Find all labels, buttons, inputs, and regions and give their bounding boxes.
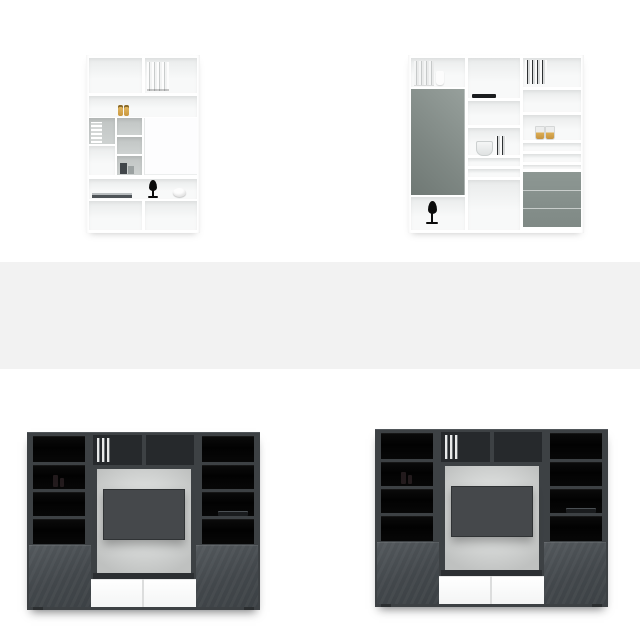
white-jug-decor — [436, 71, 444, 85]
shelf-compartment — [468, 169, 520, 177]
magazine-files-decor — [147, 62, 169, 91]
tv-screen — [103, 489, 185, 540]
product-tile-shelf-white-tall[interactable] — [86, 55, 200, 233]
black-shelf-compartment — [33, 436, 85, 462]
black-shelf-compartment — [550, 433, 602, 459]
shelf-compartment — [523, 165, 581, 169]
gray-vase-decor — [128, 166, 134, 174]
shelf-compartment — [89, 96, 197, 117]
product-tile-tv-2[interactable] — [375, 429, 608, 607]
books-decor — [97, 438, 112, 462]
shelf-compartment — [89, 146, 115, 175]
white-cabinet-door — [144, 118, 197, 175]
tv-wall-unit — [27, 432, 260, 610]
tv-wall-unit — [375, 429, 608, 607]
amber-cup-decor — [545, 126, 555, 140]
lower-door-left — [377, 542, 439, 604]
lower-door-right — [196, 545, 258, 607]
gray-drawer-cabinet — [523, 172, 581, 227]
book-stack-decor — [91, 122, 102, 143]
books-decor — [445, 435, 460, 459]
shelf-compartment — [468, 180, 520, 230]
bottle-decor — [118, 105, 123, 116]
unit-foot — [244, 607, 254, 610]
product-tile-wall-unit-white[interactable] — [408, 55, 584, 233]
drop-sculpture-base — [426, 222, 438, 224]
black-shelf-compartment — [202, 519, 254, 544]
top-shelf-divider — [490, 432, 494, 462]
flat-black-item-decor — [472, 94, 496, 98]
gray-cube-compartment — [117, 137, 142, 154]
books-decor — [414, 61, 434, 85]
glass-carafe-decor — [476, 141, 493, 156]
bottle-silhouette-decor — [60, 478, 64, 487]
dark-box-decor — [120, 163, 127, 174]
black-shelf-compartment — [202, 465, 254, 489]
black-shelf-compartment — [33, 492, 85, 516]
black-shelf-compartment — [202, 436, 254, 462]
unit-foot — [33, 607, 43, 610]
black-shelf-compartment — [550, 516, 602, 541]
drawer-divider — [142, 579, 144, 607]
black-shelf-compartment — [33, 519, 85, 544]
tv-screen — [451, 486, 533, 537]
top-shelf-divider — [142, 435, 146, 465]
unit-foot — [592, 604, 602, 607]
books-decor — [525, 60, 547, 84]
amber-cup-decor — [535, 126, 545, 140]
bottle-silhouette-decor — [408, 475, 412, 484]
lower-door-right — [544, 542, 606, 604]
shelf-compartment — [523, 90, 581, 112]
product-grid-page — [0, 0, 640, 640]
gray-cube-compartment — [117, 118, 142, 135]
lying-books-decor — [92, 193, 132, 198]
drawer-divider — [490, 576, 492, 604]
shelf-compartment — [468, 158, 520, 166]
shelf-compartment — [89, 58, 142, 93]
black-shelf-compartment — [550, 462, 602, 486]
bottle-silhouette-decor — [401, 472, 406, 484]
drop-sculpture-stem — [431, 213, 433, 222]
unit-foot — [381, 604, 391, 607]
placeholder-band — [0, 262, 640, 369]
product-tile-tv-1[interactable] — [27, 432, 260, 610]
soundbar-decor — [218, 511, 248, 516]
white-wall-unit-image — [408, 55, 584, 233]
tall-gray-door — [411, 89, 465, 195]
books-decor — [495, 136, 506, 155]
black-shelf-compartment — [381, 516, 433, 541]
drop-sculpture-base — [148, 196, 158, 198]
shelf-compartment — [523, 143, 581, 151]
black-shelf-compartment — [33, 465, 85, 489]
bottle-silhouette-decor — [53, 475, 58, 487]
drawer-seam — [523, 190, 581, 191]
white-shelf-unit-image — [86, 55, 200, 233]
shelf-compartment — [523, 154, 581, 162]
shelf-compartment — [89, 201, 142, 230]
black-shelf-compartment — [381, 462, 433, 486]
black-shelf-compartment — [381, 489, 433, 513]
lower-door-left — [29, 545, 91, 607]
white-bowl-decor — [173, 188, 186, 197]
shelf-compartment — [411, 197, 465, 230]
bottle-decor — [124, 105, 129, 116]
drawer-seam — [523, 208, 581, 209]
shelf-compartment — [145, 201, 197, 230]
soundbar-decor — [566, 508, 596, 513]
shelf-compartment — [468, 58, 520, 98]
black-shelf-compartment — [381, 433, 433, 459]
shelf-compartment — [468, 101, 520, 125]
